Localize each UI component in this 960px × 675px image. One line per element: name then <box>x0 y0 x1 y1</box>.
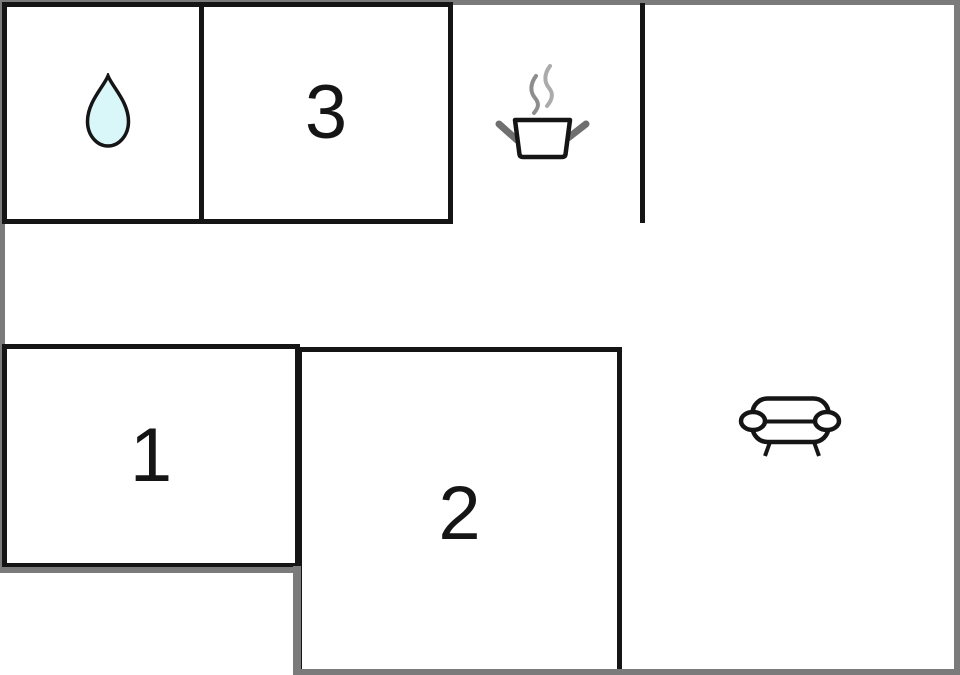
sofa-armrest-right <box>815 412 839 430</box>
pot-body <box>515 120 570 157</box>
sofa-icon <box>730 390 850 462</box>
room-3-label: 3 <box>305 75 347 151</box>
steam-line-right <box>545 66 552 106</box>
exterior-wall-bottom <box>293 669 960 675</box>
kitchen-partition-wall <box>640 3 645 223</box>
steam-line-left <box>531 76 538 113</box>
room-1: 1 <box>2 344 300 568</box>
room-2-label: 2 <box>438 476 480 552</box>
cooking-pot-icon <box>490 62 594 160</box>
sofa-armrest-left <box>741 412 765 430</box>
exterior-wall-right <box>954 0 960 675</box>
floor-plan: 3 1 2 <box>0 0 960 675</box>
room-2: 2 <box>297 347 622 675</box>
exterior-wall-jog-horizontal <box>0 567 301 573</box>
water-drop-icon <box>85 73 131 149</box>
room-1-label: 1 <box>130 418 172 494</box>
room-3: 3 <box>199 2 453 224</box>
exterior-wall-jog-vertical <box>293 566 301 675</box>
